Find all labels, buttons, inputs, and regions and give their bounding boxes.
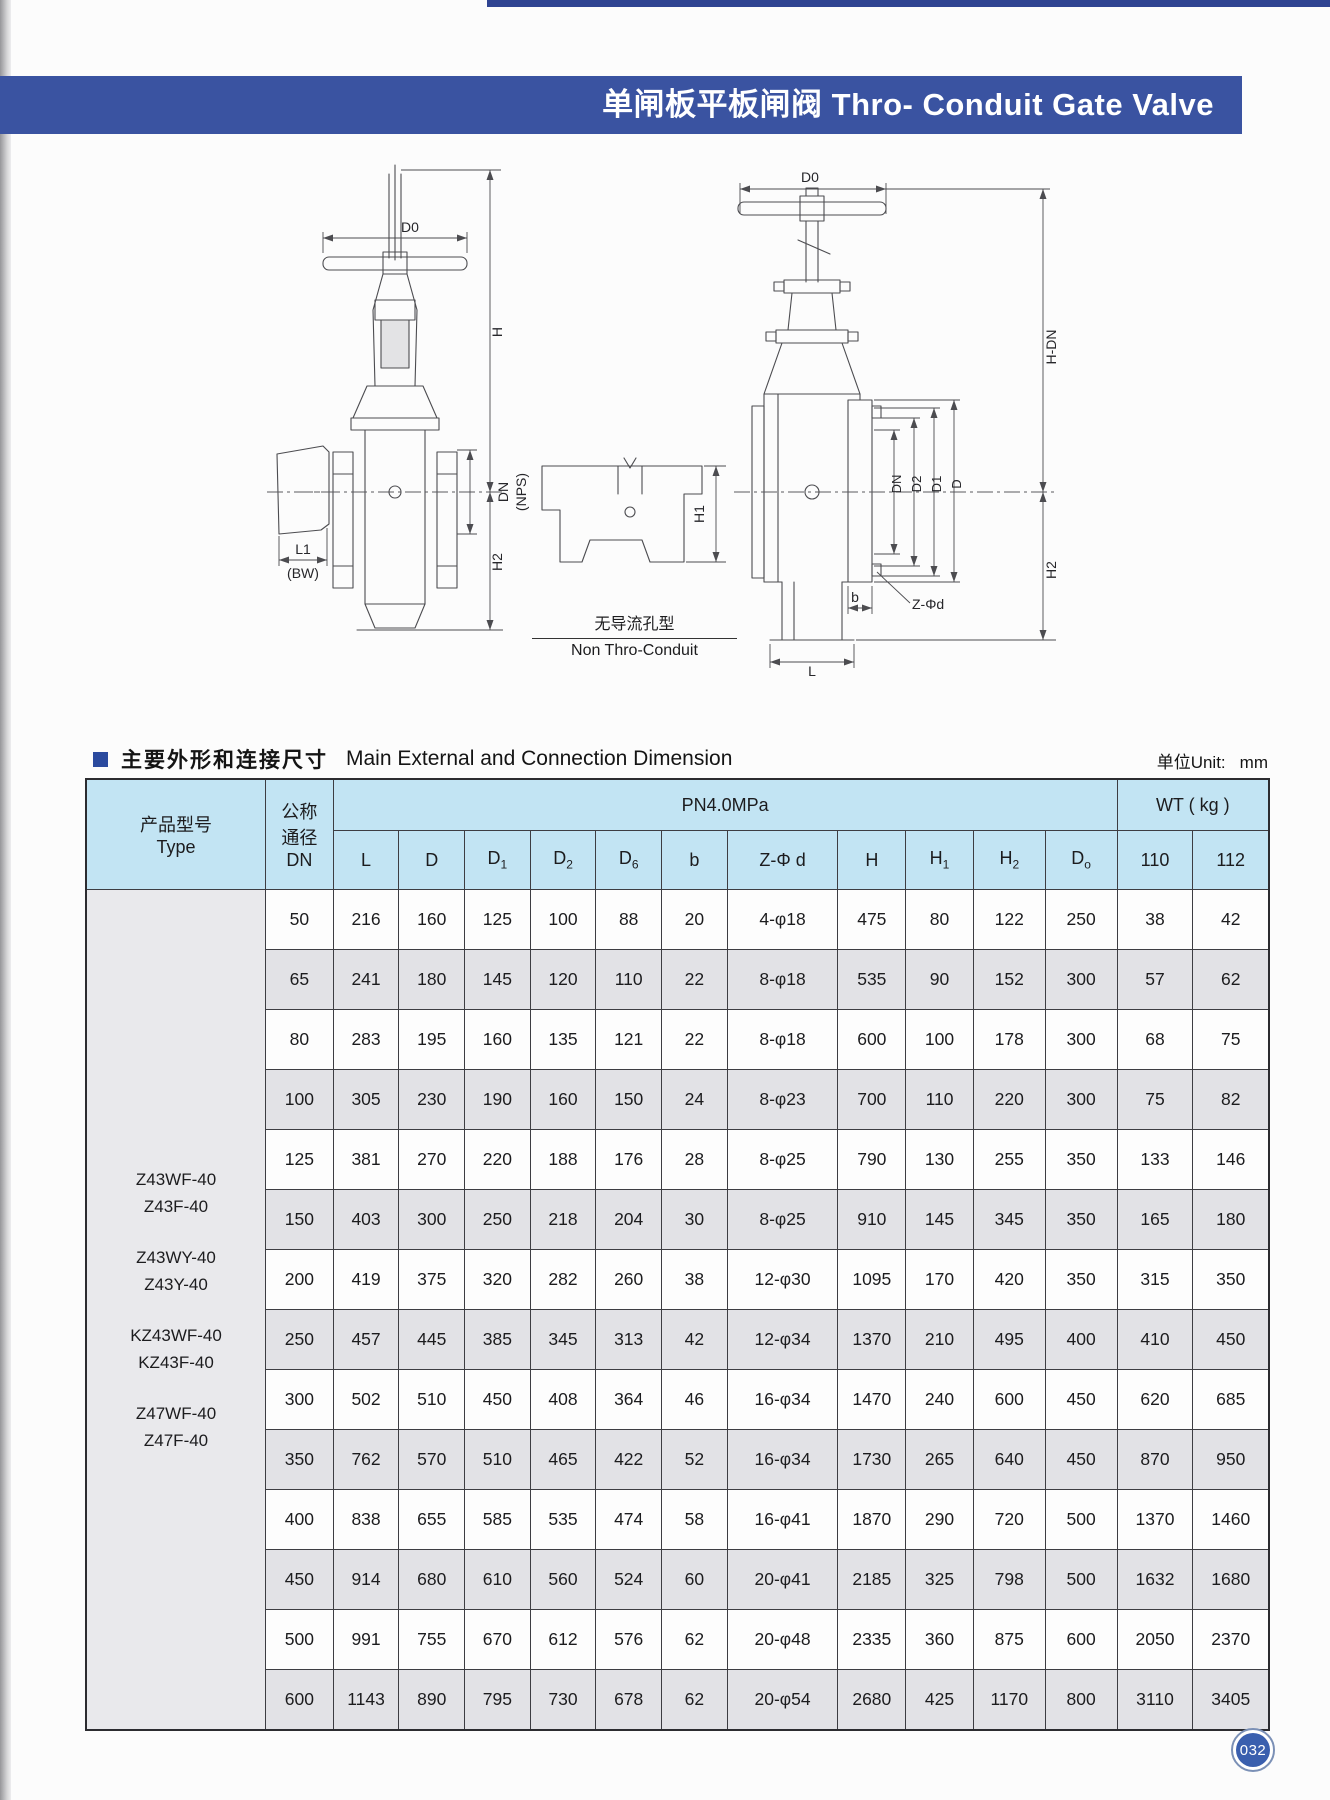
value-cell: 62 xyxy=(662,1610,728,1670)
top-edge-band xyxy=(487,0,1330,7)
dim-label-zphid: Z-Φd xyxy=(912,596,944,612)
col-header: D xyxy=(399,831,465,890)
value-cell: 20-φ48 xyxy=(727,1610,838,1670)
value-cell: 678 xyxy=(596,1670,662,1731)
value-cell: 795 xyxy=(465,1670,531,1731)
value-cell: 8-φ25 xyxy=(727,1130,838,1190)
value-cell: 24 xyxy=(662,1070,728,1130)
value-cell: 685 xyxy=(1193,1370,1269,1430)
value-cell: 250 xyxy=(465,1190,531,1250)
col-header-dn: 公称 通径 DN xyxy=(266,779,334,890)
value-cell: 300 xyxy=(1045,950,1117,1010)
type-header-zh: 产品型号 xyxy=(140,815,212,835)
page-title: 单闸板平板闸阀 Thro- Conduit Gate Valve xyxy=(602,87,1214,122)
value-cell: 576 xyxy=(596,1610,662,1670)
value-cell: 135 xyxy=(530,1010,596,1070)
value-cell: 270 xyxy=(399,1130,465,1190)
value-cell: 80 xyxy=(906,890,974,950)
value-cell: 176 xyxy=(596,1130,662,1190)
value-cell: 42 xyxy=(662,1310,728,1370)
value-cell: 450 xyxy=(1045,1370,1117,1430)
value-cell: 255 xyxy=(973,1130,1045,1190)
value-cell: 22 xyxy=(662,950,728,1010)
dim-label-h: H xyxy=(489,327,505,337)
value-cell: 313 xyxy=(596,1310,662,1370)
page-number: 032 xyxy=(1236,1733,1270,1767)
dim-label-dn: DN xyxy=(889,475,904,494)
dn-cell: 80 xyxy=(266,1010,334,1070)
value-cell: 350 xyxy=(1045,1250,1117,1310)
page-number-badge: 032 xyxy=(1231,1728,1275,1772)
value-cell: 75 xyxy=(1117,1070,1193,1130)
value-cell: 1632 xyxy=(1117,1550,1193,1610)
dim-label-l: L xyxy=(808,663,816,679)
value-cell: 1370 xyxy=(838,1310,906,1370)
value-cell: 890 xyxy=(399,1670,465,1731)
value-cell: 364 xyxy=(596,1370,662,1430)
value-cell: 8-φ25 xyxy=(727,1190,838,1250)
value-cell: 425 xyxy=(906,1670,974,1731)
value-cell: 30 xyxy=(662,1190,728,1250)
value-cell: 535 xyxy=(838,950,906,1010)
value-cell: 8-φ23 xyxy=(727,1070,838,1130)
value-cell: 38 xyxy=(1117,890,1193,950)
col-header-type: 产品型号 Type xyxy=(86,779,266,890)
type-designation: KZ43F-40 xyxy=(87,1349,265,1376)
value-cell: 260 xyxy=(596,1250,662,1310)
value-cell: 265 xyxy=(906,1430,974,1490)
value-cell: 422 xyxy=(596,1430,662,1490)
value-cell: 500 xyxy=(1045,1550,1117,1610)
value-cell: 300 xyxy=(399,1190,465,1250)
value-cell: 12-φ34 xyxy=(727,1310,838,1370)
value-cell: 204 xyxy=(596,1190,662,1250)
value-cell: 474 xyxy=(596,1490,662,1550)
value-cell: 2185 xyxy=(838,1550,906,1610)
col-header: H2 xyxy=(973,831,1045,890)
value-cell: 730 xyxy=(530,1670,596,1731)
value-cell: 325 xyxy=(906,1550,974,1610)
dim-label-nps: (NPS) xyxy=(513,473,529,511)
value-cell: 146 xyxy=(1193,1130,1269,1190)
value-cell: 88 xyxy=(596,890,662,950)
type-column-cell: Z43WF-40Z43F-40Z43WY-40Z43Y-40KZ43WF-40K… xyxy=(86,890,266,1731)
value-cell: 100 xyxy=(530,890,596,950)
value-cell: 720 xyxy=(973,1490,1045,1550)
col-header: H xyxy=(838,831,906,890)
value-cell: 170 xyxy=(906,1250,974,1310)
value-cell: 700 xyxy=(838,1070,906,1130)
value-cell: 560 xyxy=(530,1550,596,1610)
dn-cell: 350 xyxy=(266,1430,334,1490)
unit-label: 单位Unit: xyxy=(1157,753,1226,772)
value-cell: 315 xyxy=(1117,1250,1193,1310)
value-cell: 290 xyxy=(906,1490,974,1550)
value-cell: 1470 xyxy=(838,1370,906,1430)
table-row: Z43WF-40Z43F-40Z43WY-40Z43Y-40KZ43WF-40K… xyxy=(86,890,1269,950)
section-title-en: Main External and Connection Dimension xyxy=(346,747,732,771)
col-header: 110 xyxy=(1117,831,1193,890)
value-cell: 8-φ18 xyxy=(727,1010,838,1070)
dn-cell: 500 xyxy=(266,1610,334,1670)
value-cell: 400 xyxy=(1045,1310,1117,1370)
dim-label-d0: D0 xyxy=(401,219,419,235)
dim-label-d1: D1 xyxy=(929,476,944,493)
value-cell: 385 xyxy=(465,1310,531,1370)
value-cell: 320 xyxy=(465,1250,531,1310)
value-cell: 62 xyxy=(662,1670,728,1731)
dimension-table: 产品型号 Type 公称 通径 DN PN4.0MPa WT ( kg ) LD… xyxy=(85,778,1270,1731)
value-cell: 58 xyxy=(662,1490,728,1550)
value-cell: 121 xyxy=(596,1010,662,1070)
right-valve-drawing: D0 xyxy=(698,162,1073,677)
dn-cell: 450 xyxy=(266,1550,334,1610)
dn-cell: 600 xyxy=(266,1670,334,1731)
value-cell: 910 xyxy=(838,1190,906,1250)
dim-label-h2: H2 xyxy=(1043,561,1059,579)
type-designation: Z43Y-40 xyxy=(87,1271,265,1298)
value-cell: 22 xyxy=(662,1010,728,1070)
value-cell: 350 xyxy=(1045,1190,1117,1250)
value-cell: 1095 xyxy=(838,1250,906,1310)
value-cell: 218 xyxy=(530,1190,596,1250)
section-title-zh: 主要外形和连接尺寸 xyxy=(121,744,328,774)
value-cell: 230 xyxy=(399,1070,465,1130)
value-cell: 345 xyxy=(530,1310,596,1370)
value-cell: 450 xyxy=(1193,1310,1269,1370)
dn-cell: 100 xyxy=(266,1070,334,1130)
value-cell: 160 xyxy=(530,1070,596,1130)
value-cell: 610 xyxy=(465,1550,531,1610)
type-designation: Z47WF-40 xyxy=(87,1400,265,1427)
value-cell: 620 xyxy=(1117,1370,1193,1430)
col-header: L xyxy=(333,831,399,890)
value-cell: 3405 xyxy=(1193,1670,1269,1731)
value-cell: 790 xyxy=(838,1130,906,1190)
value-cell: 8-φ18 xyxy=(727,950,838,1010)
value-cell: 1680 xyxy=(1193,1550,1269,1610)
value-cell: 2335 xyxy=(838,1610,906,1670)
value-cell: 28 xyxy=(662,1130,728,1190)
value-cell: 991 xyxy=(333,1610,399,1670)
value-cell: 570 xyxy=(399,1430,465,1490)
value-cell: 420 xyxy=(973,1250,1045,1310)
value-cell: 210 xyxy=(906,1310,974,1370)
type-header-en: Type xyxy=(157,837,196,857)
group-header-wt: WT ( kg ) xyxy=(1117,779,1269,831)
value-cell: 100 xyxy=(906,1010,974,1070)
value-cell: 160 xyxy=(465,1010,531,1070)
value-cell: 2050 xyxy=(1117,1610,1193,1670)
dim-label-d: D xyxy=(949,479,964,488)
value-cell: 82 xyxy=(1193,1070,1269,1130)
col-header: Do xyxy=(1045,831,1117,890)
value-cell: 410 xyxy=(1117,1310,1193,1370)
value-cell: 3110 xyxy=(1117,1670,1193,1731)
value-cell: 42 xyxy=(1193,890,1269,950)
value-cell: 145 xyxy=(465,950,531,1010)
value-cell: 2370 xyxy=(1193,1610,1269,1670)
value-cell: 300 xyxy=(1045,1070,1117,1130)
value-cell: 180 xyxy=(1193,1190,1269,1250)
value-cell: 762 xyxy=(333,1430,399,1490)
value-cell: 360 xyxy=(906,1610,974,1670)
value-cell: 90 xyxy=(906,950,974,1010)
value-cell: 110 xyxy=(906,1070,974,1130)
value-cell: 1870 xyxy=(838,1490,906,1550)
col-header: D6 xyxy=(596,831,662,890)
value-cell: 510 xyxy=(399,1370,465,1430)
value-cell: 457 xyxy=(333,1310,399,1370)
dim-label-hdn: H-DN xyxy=(1043,330,1059,365)
group-header-pn: PN4.0MPa xyxy=(333,779,1117,831)
dn-cell: 400 xyxy=(266,1490,334,1550)
dim-label-h2: H2 xyxy=(489,553,505,571)
dim-label-d0: D0 xyxy=(801,169,819,185)
dn-cell: 125 xyxy=(266,1130,334,1190)
value-cell: 475 xyxy=(838,890,906,950)
value-cell: 798 xyxy=(973,1550,1045,1610)
value-cell: 220 xyxy=(973,1070,1045,1130)
value-cell: 195 xyxy=(399,1010,465,1070)
section-title: 主要外形和连接尺寸 Main External and Connection D… xyxy=(93,744,732,774)
value-cell: 283 xyxy=(333,1010,399,1070)
value-cell: 640 xyxy=(973,1430,1045,1490)
value-cell: 16-φ34 xyxy=(727,1430,838,1490)
value-cell: 180 xyxy=(399,950,465,1010)
value-cell: 670 xyxy=(465,1610,531,1670)
value-cell: 600 xyxy=(838,1010,906,1070)
type-designation: Z47F-40 xyxy=(87,1427,265,1454)
dn-cell: 200 xyxy=(266,1250,334,1310)
type-designation: Z43WF-40 xyxy=(87,1166,265,1193)
value-cell: 188 xyxy=(530,1130,596,1190)
value-cell: 450 xyxy=(1045,1430,1117,1490)
value-cell: 165 xyxy=(1117,1190,1193,1250)
value-cell: 535 xyxy=(530,1490,596,1550)
value-cell: 282 xyxy=(530,1250,596,1310)
value-cell: 241 xyxy=(333,950,399,1010)
col-header: H1 xyxy=(906,831,974,890)
value-cell: 150 xyxy=(596,1070,662,1130)
value-cell: 57 xyxy=(1117,950,1193,1010)
value-cell: 52 xyxy=(662,1430,728,1490)
value-cell: 220 xyxy=(465,1130,531,1190)
value-cell: 20-φ54 xyxy=(727,1670,838,1731)
value-cell: 495 xyxy=(973,1310,1045,1370)
value-cell: 160 xyxy=(399,890,465,950)
value-cell: 75 xyxy=(1193,1010,1269,1070)
value-cell: 381 xyxy=(333,1130,399,1190)
dn-cell: 65 xyxy=(266,950,334,1010)
value-cell: 950 xyxy=(1193,1430,1269,1490)
catalog-page: 单闸板平板闸阀 Thro- Conduit Gate Valve D0 xyxy=(0,0,1330,1800)
value-cell: 375 xyxy=(399,1250,465,1310)
value-cell: 870 xyxy=(1117,1430,1193,1490)
value-cell: 1143 xyxy=(333,1670,399,1731)
value-cell: 152 xyxy=(973,950,1045,1010)
page-title-banner: 单闸板平板闸阀 Thro- Conduit Gate Valve xyxy=(0,76,1242,134)
value-cell: 68 xyxy=(1117,1010,1193,1070)
value-cell: 875 xyxy=(973,1610,1045,1670)
value-cell: 110 xyxy=(596,950,662,1010)
value-cell: 46 xyxy=(662,1370,728,1430)
value-cell: 419 xyxy=(333,1250,399,1310)
value-cell: 465 xyxy=(530,1430,596,1490)
value-cell: 350 xyxy=(1045,1130,1117,1190)
value-cell: 125 xyxy=(465,890,531,950)
value-cell: 500 xyxy=(1045,1490,1117,1550)
value-cell: 12-φ30 xyxy=(727,1250,838,1310)
value-cell: 62 xyxy=(1193,950,1269,1010)
dim-label-l1: L1 xyxy=(295,541,311,557)
value-cell: 445 xyxy=(399,1310,465,1370)
dn-cell: 300 xyxy=(266,1370,334,1430)
value-cell: 510 xyxy=(465,1430,531,1490)
value-cell: 600 xyxy=(973,1370,1045,1430)
value-cell: 1730 xyxy=(838,1430,906,1490)
value-cell: 755 xyxy=(399,1610,465,1670)
value-cell: 1460 xyxy=(1193,1490,1269,1550)
dim-label-dn: DN xyxy=(495,482,511,502)
col-header: b xyxy=(662,831,728,890)
type-designation: KZ43WF-40 xyxy=(87,1322,265,1349)
value-cell: 305 xyxy=(333,1070,399,1130)
dn-header-zh2: 通径 xyxy=(281,828,317,848)
value-cell: 190 xyxy=(465,1070,531,1130)
value-cell: 838 xyxy=(333,1490,399,1550)
value-cell: 16-φ34 xyxy=(727,1370,838,1430)
value-cell: 800 xyxy=(1045,1670,1117,1731)
col-header: Z-Φ d xyxy=(727,831,838,890)
value-cell: 20 xyxy=(662,890,728,950)
dn-cell: 150 xyxy=(266,1190,334,1250)
type-designation: Z43WY-40 xyxy=(87,1244,265,1271)
left-valve-drawing: D0 DN (NPS) xyxy=(205,162,545,644)
value-cell: 524 xyxy=(596,1550,662,1610)
dn-header-en: DN xyxy=(286,850,312,870)
value-cell: 1370 xyxy=(1117,1490,1193,1550)
value-cell: 216 xyxy=(333,890,399,950)
value-cell: 2680 xyxy=(838,1670,906,1731)
dim-label-bw: (BW) xyxy=(287,565,319,581)
type-designation: Z43F-40 xyxy=(87,1193,265,1220)
col-header: D1 xyxy=(465,831,531,890)
scan-gutter xyxy=(0,0,11,1800)
value-cell: 345 xyxy=(973,1190,1045,1250)
col-header: D2 xyxy=(530,831,596,890)
value-cell: 585 xyxy=(465,1490,531,1550)
value-cell: 240 xyxy=(906,1370,974,1430)
dim-label-b: b xyxy=(851,589,859,605)
value-cell: 16-φ41 xyxy=(727,1490,838,1550)
section-bullet-icon xyxy=(93,752,108,767)
value-cell: 914 xyxy=(333,1550,399,1610)
value-cell: 4-φ18 xyxy=(727,890,838,950)
value-cell: 120 xyxy=(530,950,596,1010)
unit-note: 单位Unit:mm xyxy=(1157,748,1268,773)
value-cell: 130 xyxy=(906,1130,974,1190)
value-cell: 38 xyxy=(662,1250,728,1310)
value-cell: 300 xyxy=(1045,1010,1117,1070)
dim-label-d2: D2 xyxy=(909,476,924,493)
value-cell: 20-φ41 xyxy=(727,1550,838,1610)
value-cell: 122 xyxy=(973,890,1045,950)
dn-cell: 250 xyxy=(266,1310,334,1370)
value-cell: 1170 xyxy=(973,1670,1045,1731)
value-cell: 612 xyxy=(530,1610,596,1670)
value-cell: 408 xyxy=(530,1370,596,1430)
value-cell: 145 xyxy=(906,1190,974,1250)
value-cell: 680 xyxy=(399,1550,465,1610)
value-cell: 502 xyxy=(333,1370,399,1430)
col-header: 112 xyxy=(1193,831,1269,890)
dn-cell: 50 xyxy=(266,890,334,950)
unit-value: mm xyxy=(1240,753,1268,772)
value-cell: 250 xyxy=(1045,890,1117,950)
value-cell: 178 xyxy=(973,1010,1045,1070)
value-cell: 450 xyxy=(465,1370,531,1430)
value-cell: 403 xyxy=(333,1190,399,1250)
value-cell: 350 xyxy=(1193,1250,1269,1310)
dn-header-zh1: 公称 xyxy=(281,802,317,822)
value-cell: 655 xyxy=(399,1490,465,1550)
value-cell: 133 xyxy=(1117,1130,1193,1190)
value-cell: 60 xyxy=(662,1550,728,1610)
value-cell: 600 xyxy=(1045,1610,1117,1670)
